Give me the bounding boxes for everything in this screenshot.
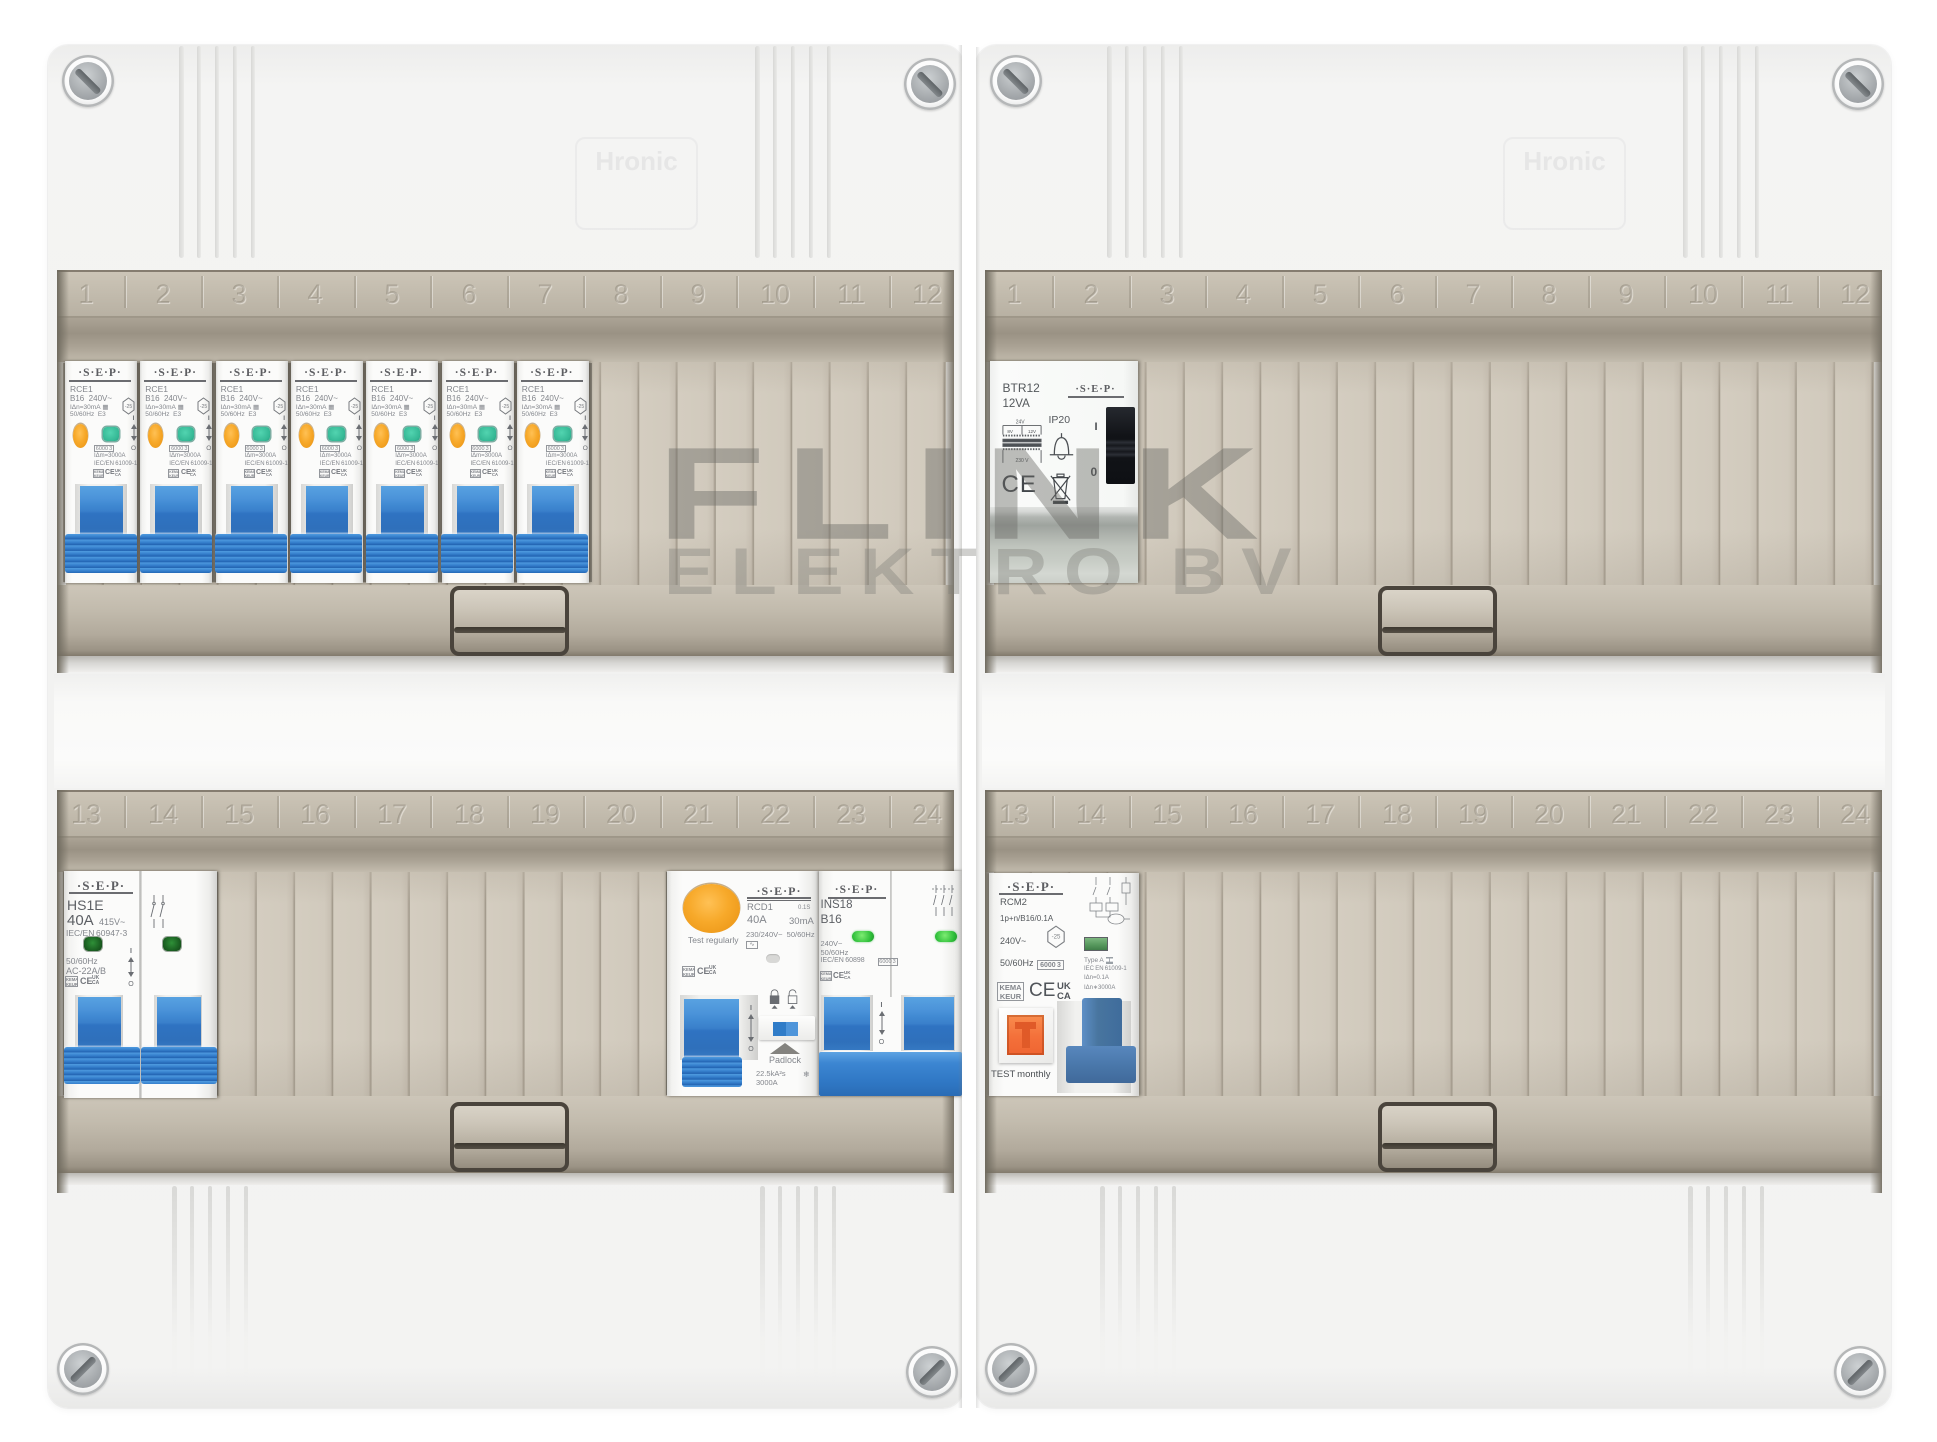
svg-text:-25: -25 (275, 404, 282, 410)
svg-text:-25: -25 (125, 404, 132, 410)
svg-text:-25: -25 (501, 404, 508, 410)
svg-text:-25: -25 (200, 404, 207, 410)
svg-text:-25: -25 (426, 404, 433, 410)
svg-text:-25: -25 (1052, 933, 1061, 940)
svg-text:-25: -25 (577, 404, 584, 410)
svg-text:-25: -25 (351, 404, 358, 410)
